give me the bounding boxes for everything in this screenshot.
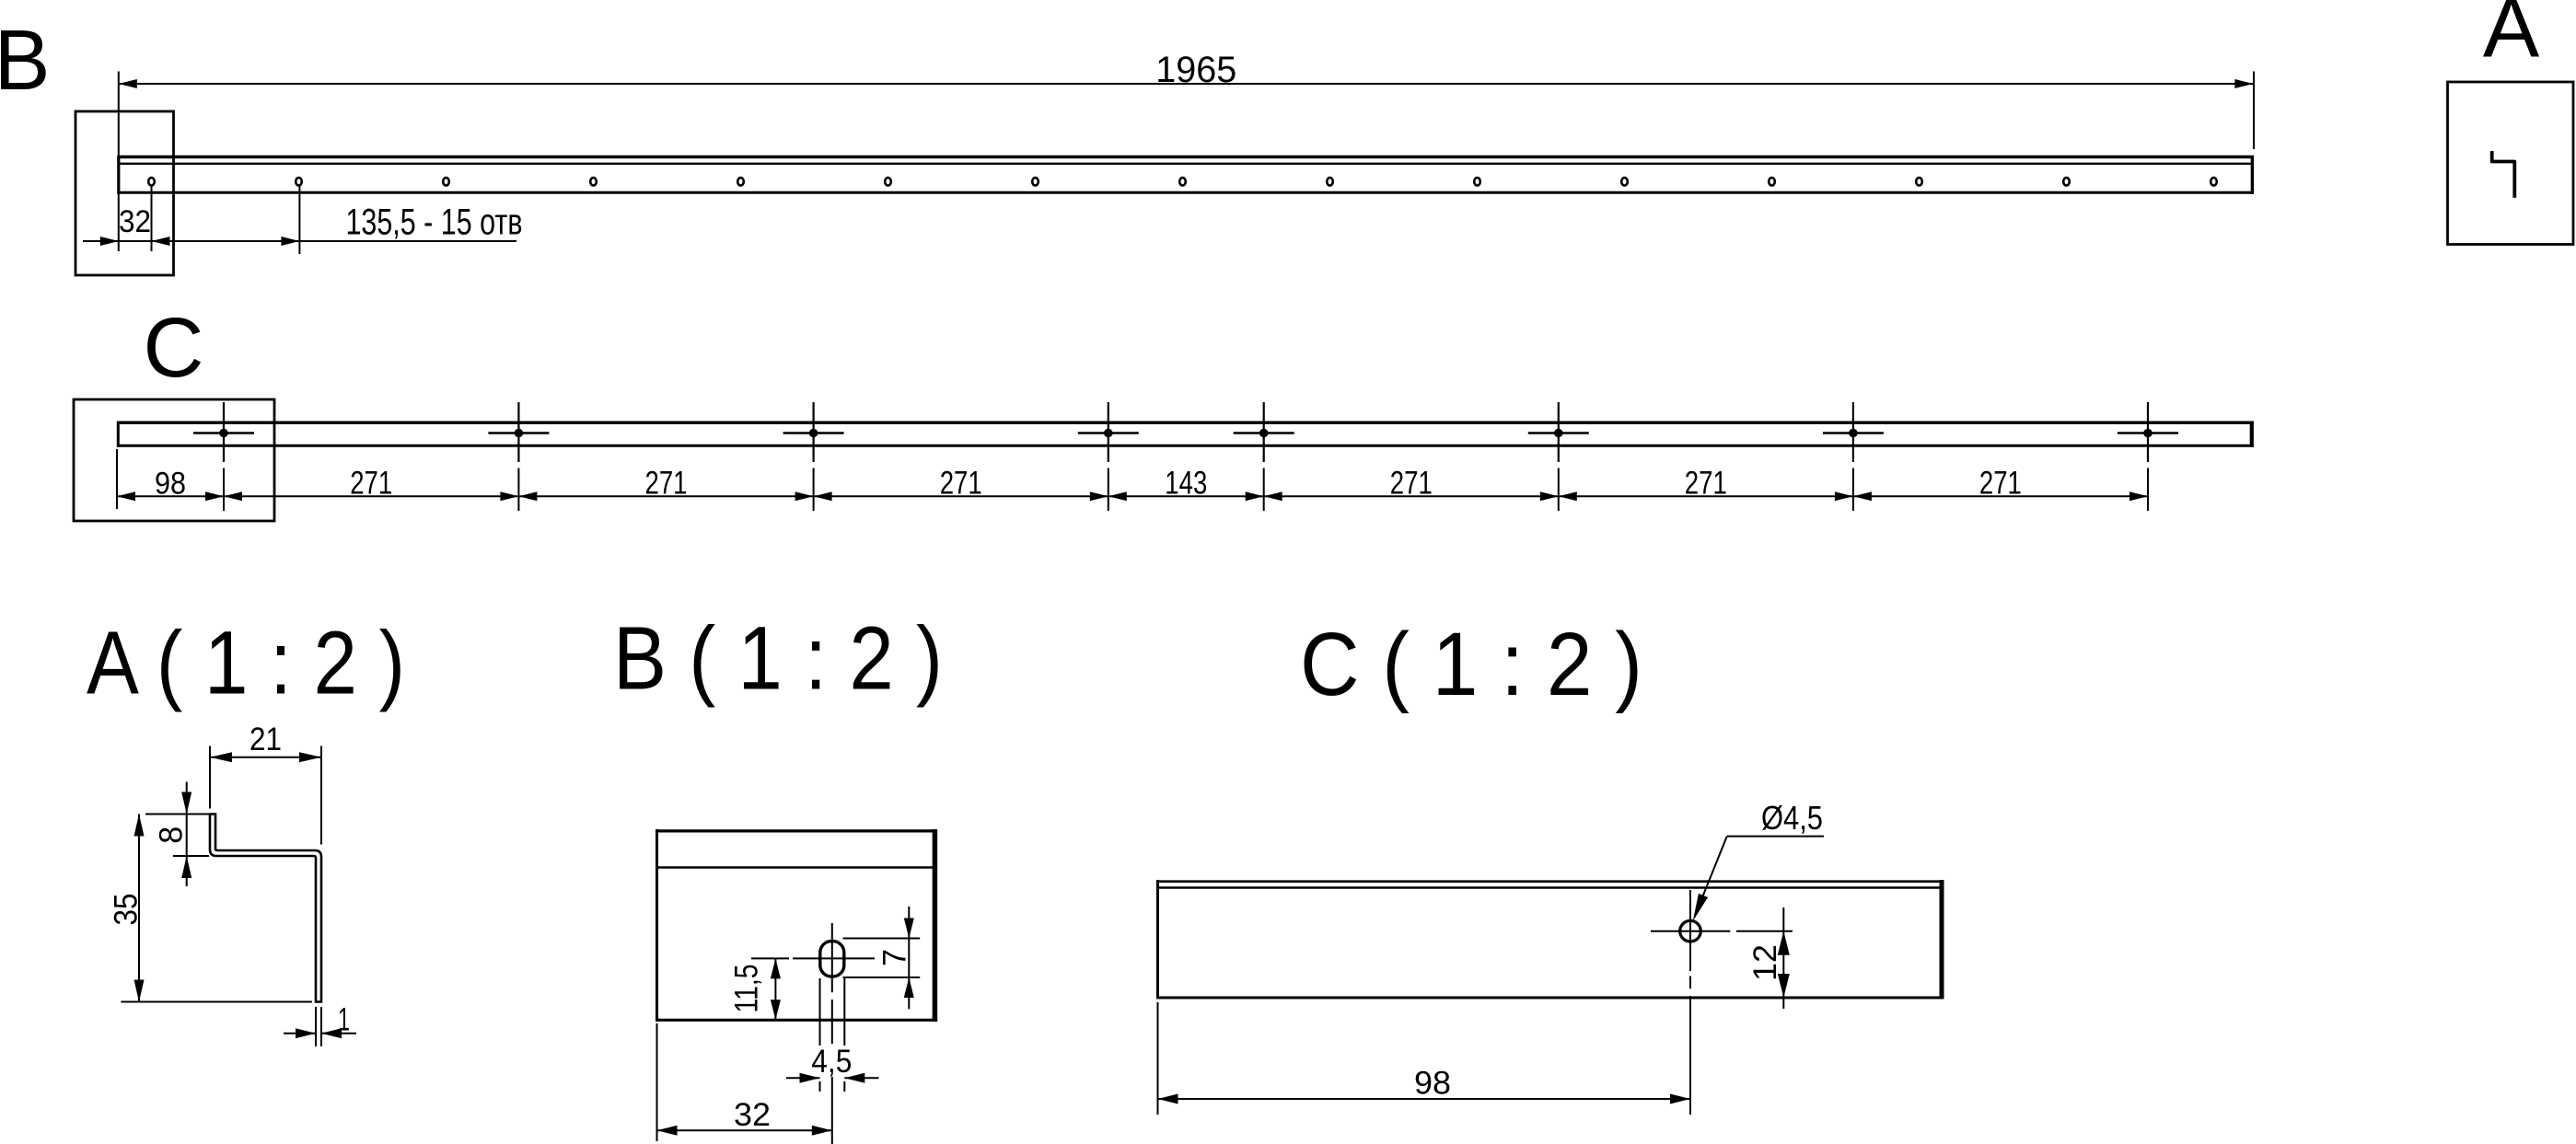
svg-text:135,5 - 15 отв: 135,5 - 15 отв [346, 202, 523, 243]
svg-text:4,5: 4,5 [811, 1044, 852, 1080]
svg-text:21: 21 [249, 722, 282, 757]
svg-text:271: 271 [940, 466, 982, 502]
svg-text:8: 8 [154, 826, 190, 844]
svg-text:7: 7 [877, 949, 913, 966]
svg-text:271: 271 [1390, 466, 1433, 502]
svg-text:32: 32 [734, 1097, 771, 1133]
svg-text:A: A [2483, 0, 2540, 75]
svg-text:B ( 1 : 2 ): B ( 1 : 2 ) [613, 608, 943, 709]
svg-text:1965: 1965 [1155, 50, 1236, 90]
svg-text:C ( 1 : 2 ): C ( 1 : 2 ) [1300, 614, 1642, 714]
svg-text:98: 98 [1414, 1066, 1451, 1102]
svg-text:271: 271 [1685, 466, 1727, 502]
svg-text:11,5: 11,5 [729, 965, 765, 1013]
svg-text:C: C [144, 301, 204, 395]
svg-text:Ø4,5: Ø4,5 [1761, 799, 1823, 837]
svg-text:143: 143 [1165, 466, 1207, 502]
svg-text:98: 98 [155, 467, 186, 502]
svg-text:271: 271 [1979, 466, 2022, 502]
svg-text:12: 12 [1747, 944, 1783, 981]
svg-text:1: 1 [338, 1002, 350, 1038]
svg-text:271: 271 [350, 466, 392, 502]
svg-text:32: 32 [119, 204, 151, 239]
svg-text:A ( 1 : 2 ): A ( 1 : 2 ) [87, 613, 405, 713]
svg-text:271: 271 [645, 466, 688, 502]
svg-text:35: 35 [108, 894, 144, 926]
svg-text:B: B [0, 12, 51, 108]
